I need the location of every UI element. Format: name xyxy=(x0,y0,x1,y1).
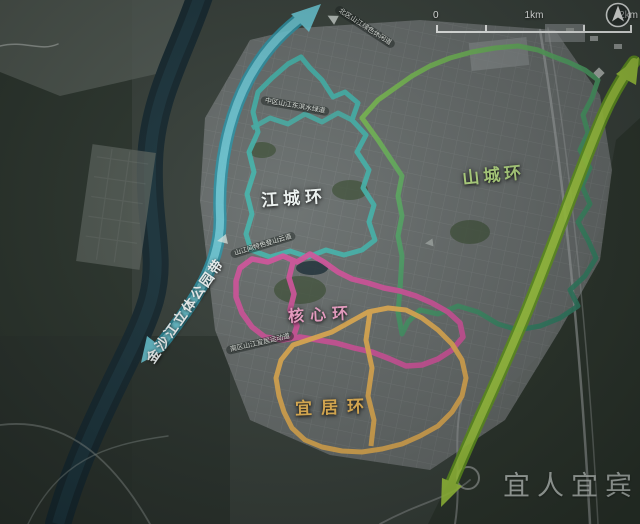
pointer-left-icon xyxy=(424,238,433,247)
scale-label-1km: 1km xyxy=(525,10,544,21)
label-jiangcheng-ring: 江城环 xyxy=(260,182,328,212)
scale-label-0: 0 xyxy=(433,10,439,21)
map-canvas: 0 1km 2km 江城环 山城环 核心环 宜居环 金沙江立体公园带 北区山江绿… xyxy=(0,0,640,524)
label-yiju-ring: 宜居环 xyxy=(295,392,374,420)
label-hexin-ring: 核心环 xyxy=(287,299,354,326)
satellite-map-art xyxy=(0,0,640,524)
watermark-text: 宜人宜宾 xyxy=(503,464,639,503)
compass-north-icon xyxy=(602,1,634,29)
